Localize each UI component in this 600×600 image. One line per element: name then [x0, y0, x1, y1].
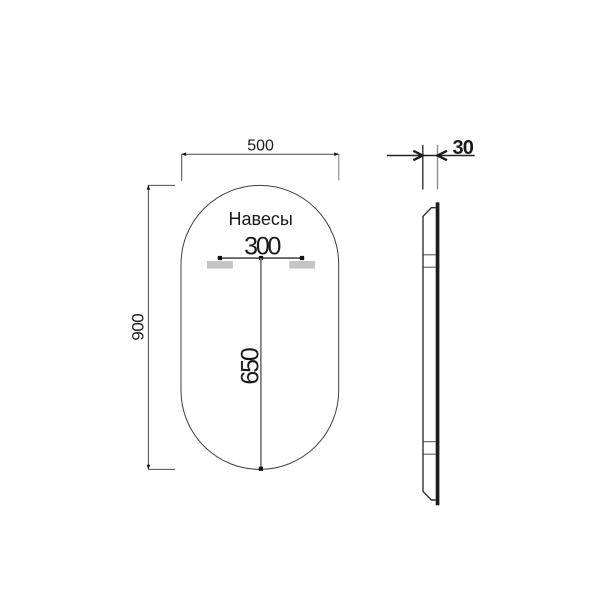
- svg-text:500: 500: [247, 137, 274, 154]
- svg-text:30: 30: [452, 137, 473, 159]
- svg-text:900: 900: [129, 314, 148, 341]
- svg-text:Навесы: Навесы: [229, 209, 293, 229]
- svg-text:650: 650: [237, 348, 265, 384]
